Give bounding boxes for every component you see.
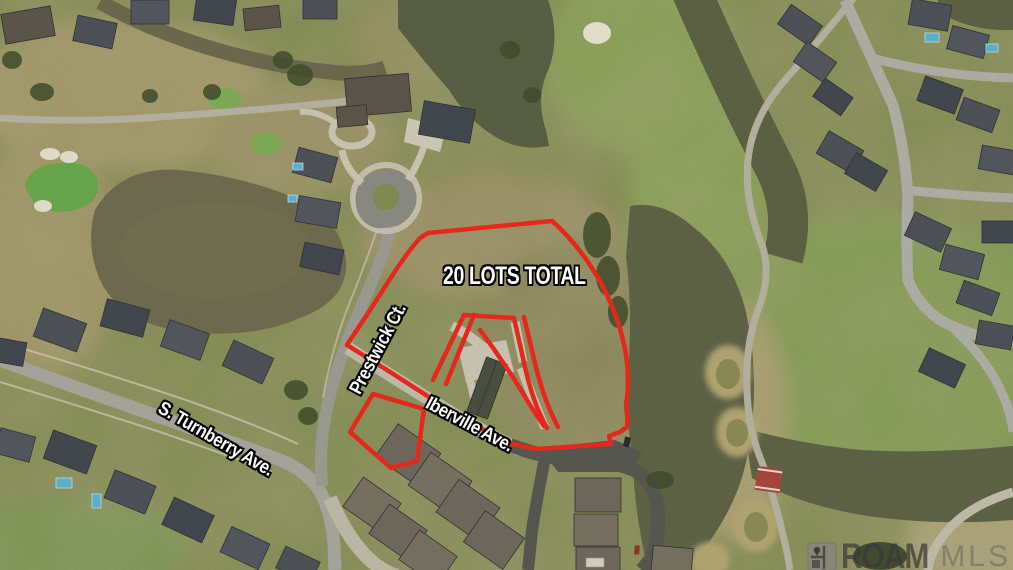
lots-total-label: 20 LOTS TOTAL (443, 264, 586, 289)
interior-lot-line (464, 315, 514, 318)
aerial-listing-photo: 20 LOTS TOTAL Prestwick Ct. Iberville Av… (0, 0, 1013, 570)
